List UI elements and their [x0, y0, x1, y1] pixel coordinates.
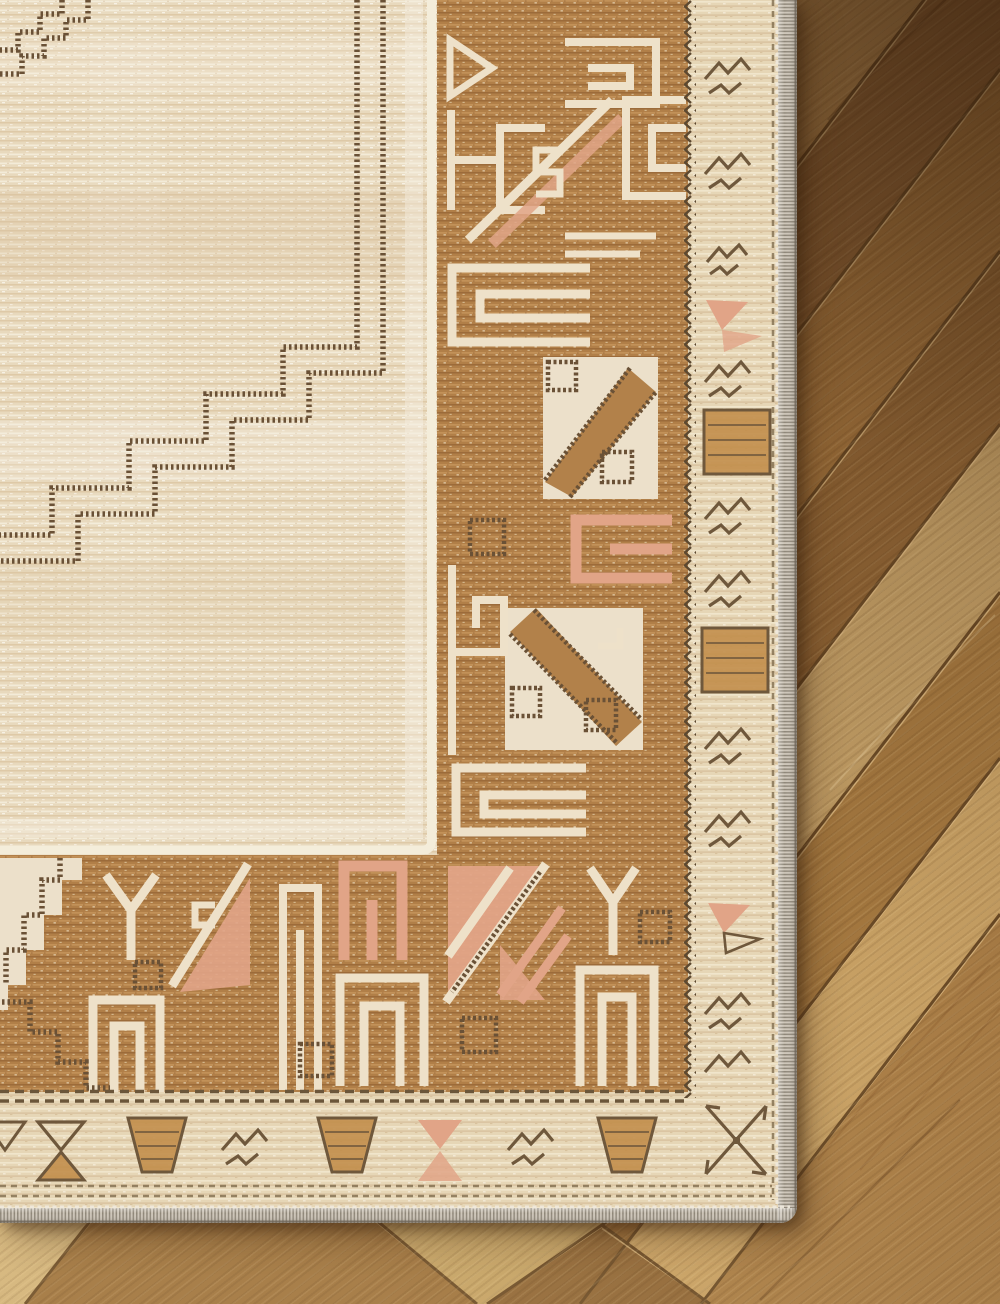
photo-scene	[0, 0, 1000, 1304]
field	[0, 0, 437, 855]
rug-art	[0, 0, 797, 1223]
rug	[0, 0, 797, 1223]
